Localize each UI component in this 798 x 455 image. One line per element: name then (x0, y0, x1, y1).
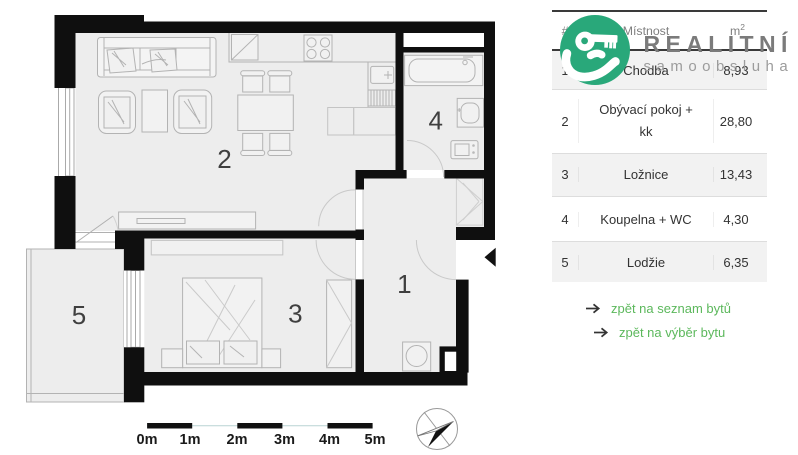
svg-text:5: 5 (72, 300, 86, 330)
svg-text:4m: 4m (319, 432, 340, 448)
svg-text:0m: 0m (137, 432, 158, 448)
svg-text:2: 2 (217, 144, 231, 174)
svg-text:1m: 1m (180, 432, 201, 448)
svg-text:3: 3 (288, 299, 302, 329)
svg-text:1: 1 (397, 269, 411, 299)
svg-text:4: 4 (428, 106, 442, 136)
svg-text:3m: 3m (274, 432, 295, 448)
svg-text:2m: 2m (227, 432, 248, 448)
svg-text:5m: 5m (365, 432, 386, 448)
